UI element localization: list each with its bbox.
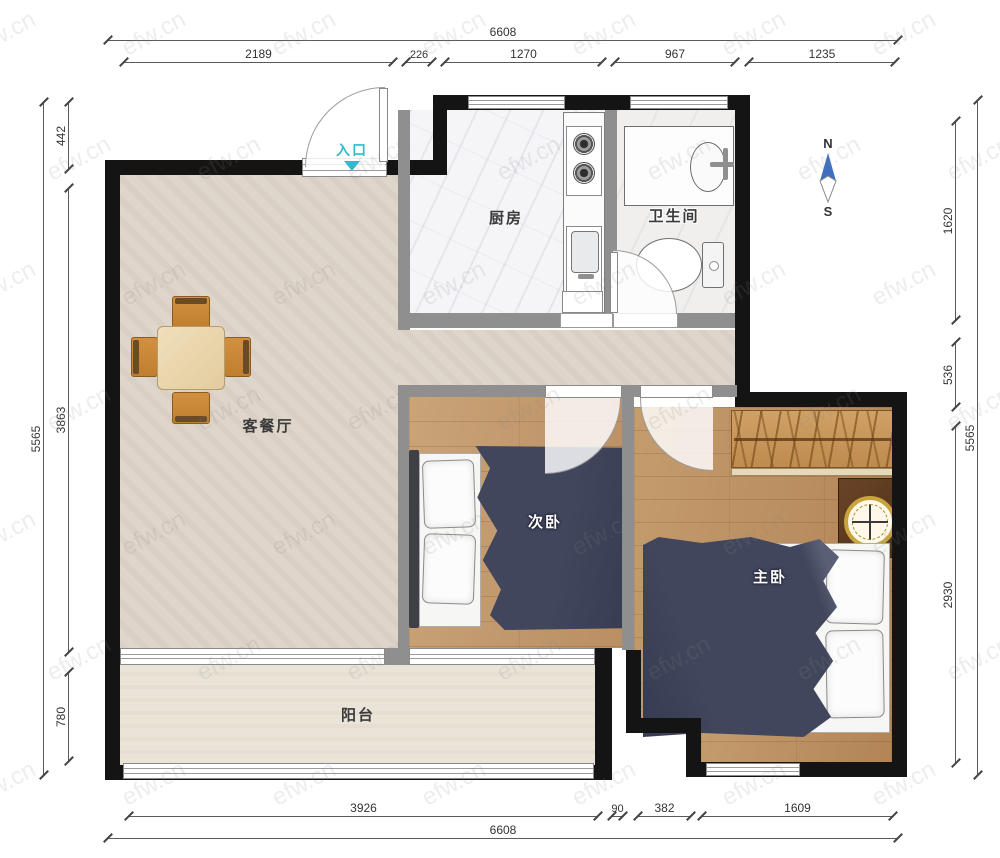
bathroom-door-threshold xyxy=(613,313,678,328)
dim-right-seg-2: 536 xyxy=(955,342,956,407)
bathroom-door-leaf xyxy=(610,252,618,313)
dim-bottom-seg-1: 3926 xyxy=(129,816,598,817)
watermark-text: efw.cn xyxy=(267,6,340,63)
watermark-text: efw.cn xyxy=(717,6,790,63)
partition-kitchen-bottom xyxy=(398,313,560,328)
watermark-text: efw.cn xyxy=(942,131,1000,188)
stove-burner-2 xyxy=(573,162,595,184)
master-bed-pillow-2 xyxy=(825,630,885,719)
toilet-tank xyxy=(702,242,724,288)
wall-top-master xyxy=(737,392,907,407)
wall-master-left-lower xyxy=(626,650,641,733)
dim-bottom-total: 6608 xyxy=(108,838,898,839)
partition-balcony-post xyxy=(385,648,409,665)
secondary-bed-pillow-1 xyxy=(422,459,476,529)
dim-left-seg-3: 780 xyxy=(68,672,69,761)
watermark-text: efw.cn xyxy=(867,6,940,63)
watermark-text: efw.cn xyxy=(417,6,490,63)
dining-chair-top xyxy=(172,296,210,328)
kitchen-label: 厨房 xyxy=(466,207,546,228)
bathroom-label: 卫生间 xyxy=(634,205,714,226)
partition-bedroom-top-3 xyxy=(713,385,737,397)
dim-top-seg-1: 2189 xyxy=(124,62,393,63)
dim-right-seg-3: 2930 xyxy=(955,426,956,763)
wall-top-living xyxy=(105,160,302,175)
dim-bottom-seg-3: 382 xyxy=(638,816,691,817)
dim-top-seg-3: 1270 xyxy=(445,62,602,63)
dim-top-total: 6608 xyxy=(108,40,898,41)
clock xyxy=(844,496,896,548)
dim-bottom-seg-4: 1609 xyxy=(702,816,893,817)
dining-chair-bottom xyxy=(172,392,210,424)
dim-right-total: 5565 xyxy=(977,100,978,775)
dim-top-seg-2: 226 xyxy=(406,62,432,63)
bathroom-basin xyxy=(690,142,726,192)
stove-burner-1 xyxy=(573,133,595,155)
living-balcony-slider xyxy=(120,648,385,665)
secondary-door-leaf xyxy=(545,385,622,398)
dim-left-seg-1: 442 xyxy=(68,102,69,169)
bathroom-window xyxy=(630,96,728,109)
dining-chair-right xyxy=(224,337,251,377)
wall-balcony-right xyxy=(595,648,612,780)
partition-bedrooms-divider xyxy=(622,385,634,650)
dim-bottom-seg-2: 90 xyxy=(612,816,623,817)
compass-needle-icon xyxy=(817,152,839,204)
compass-south-label: S xyxy=(817,204,839,219)
watermark-text: efw.cn xyxy=(567,6,640,63)
kitchen-sink-basin xyxy=(571,231,599,273)
master-door-leaf xyxy=(640,385,713,398)
balcony-label: 阳台 xyxy=(318,704,398,725)
kitchen-faucet xyxy=(578,274,594,279)
secondary-bed-pillow-2 xyxy=(422,533,476,605)
watermark-text: efw.cn xyxy=(0,756,41,813)
partition-bedroom-top-1 xyxy=(398,385,545,397)
entrance-label: 入口 xyxy=(322,140,382,160)
entrance-arrow-icon xyxy=(344,161,360,171)
dim-left-seg-2: 3863 xyxy=(68,188,69,652)
kitchen-window xyxy=(468,96,565,109)
watermark-text: efw.cn xyxy=(117,6,190,63)
wall-right xyxy=(892,392,907,777)
master-bedroom-window xyxy=(706,763,800,776)
wall-right-bath xyxy=(735,95,750,407)
living-dining-label: 客餐厅 xyxy=(218,415,318,436)
hallway-floor xyxy=(398,330,737,392)
compass-north-label: N xyxy=(817,136,839,151)
watermark-text: efw.cn xyxy=(0,506,41,563)
partition-secondary-left xyxy=(398,385,409,648)
dim-right-seg-1: 1620 xyxy=(955,121,956,320)
kitchen-sliding-door-leaf xyxy=(562,291,603,313)
dining-chair-left xyxy=(131,337,158,377)
bathroom-faucet-horizontal xyxy=(710,162,734,167)
master-bedroom-label: 主卧 xyxy=(730,566,810,587)
watermark-text: efw.cn xyxy=(942,631,1000,688)
balcony-railing-window xyxy=(123,763,594,779)
clock-ring xyxy=(852,504,888,540)
watermark-text: efw.cn xyxy=(867,256,940,313)
dim-top-seg-5: 1235 xyxy=(749,62,895,63)
dim-left-total: 5565 xyxy=(43,102,44,775)
partition-kitchen-left xyxy=(398,110,410,330)
wardrobe xyxy=(731,410,894,468)
living-dining-floor xyxy=(120,175,398,648)
kitchen-door-threshold xyxy=(560,313,613,328)
watermark-text: efw.cn xyxy=(0,256,41,313)
secondary-bedroom-label: 次卧 xyxy=(505,511,585,532)
secondary-bed-headboard xyxy=(409,450,419,628)
wall-left xyxy=(105,160,120,780)
partition-bath-bottom xyxy=(678,313,735,328)
dining-table xyxy=(157,326,225,390)
floor-plan: 入口 厨房 卫生间 客餐厅 次卧 主卧 阳台 N S 6608 2189 226… xyxy=(0,0,1000,858)
secondary-bedroom-window xyxy=(409,648,595,665)
bathroom-faucet-vertical xyxy=(723,148,728,180)
watermark-text: efw.cn xyxy=(0,6,41,63)
dim-top-seg-4: 967 xyxy=(615,62,735,63)
wardrobe-shelf xyxy=(731,468,894,476)
